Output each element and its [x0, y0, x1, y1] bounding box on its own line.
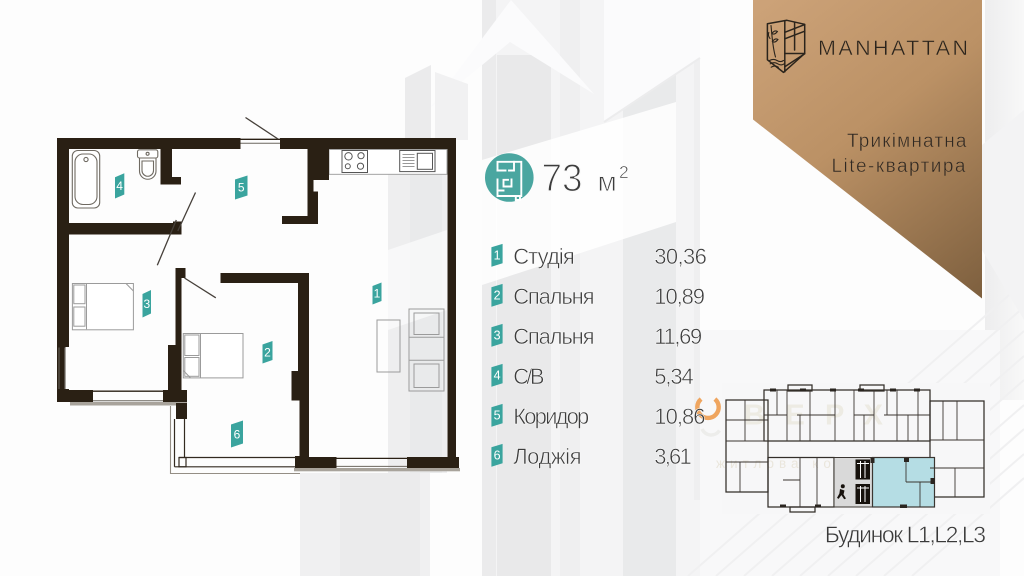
svg-text:4: 4: [116, 179, 123, 193]
svg-text:10,86: 10,86: [654, 404, 705, 429]
svg-text:4: 4: [494, 369, 501, 383]
svg-text:Коридор: Коридор: [513, 404, 589, 429]
svg-text:1: 1: [494, 249, 501, 263]
svg-text:Студія: Студія: [513, 244, 575, 269]
svg-text:2: 2: [264, 346, 271, 360]
svg-text:5: 5: [238, 181, 245, 195]
svg-text:MANHATTAN: MANHATTAN: [818, 36, 968, 60]
svg-text:2: 2: [494, 289, 501, 303]
svg-text:Трикімнатна: Трикімнатна: [847, 131, 967, 152]
svg-text:30,36: 30,36: [654, 244, 707, 269]
svg-text:Спальня: Спальня: [513, 324, 594, 349]
svg-text:5: 5: [494, 409, 501, 423]
svg-text:2: 2: [619, 162, 629, 182]
svg-text:6: 6: [494, 449, 501, 463]
svg-text:Спальня: Спальня: [513, 284, 594, 309]
svg-text:3,61: 3,61: [654, 444, 691, 469]
svg-text:Лоджія: Лоджія: [513, 444, 581, 469]
svg-text:3: 3: [143, 297, 150, 311]
svg-text:Lite-квартира: Lite-квартира: [832, 156, 966, 177]
svg-text:6: 6: [234, 428, 241, 442]
svg-text:Будинок L1,L2,L3: Будинок L1,L2,L3: [825, 521, 986, 547]
svg-text:м: м: [598, 166, 617, 197]
svg-text:С/В: С/В: [513, 364, 544, 389]
svg-text:1: 1: [374, 287, 381, 301]
svg-text:73: 73: [542, 157, 583, 200]
svg-text:11,69: 11,69: [654, 324, 702, 349]
svg-text:10,89: 10,89: [654, 284, 705, 309]
svg-text:5,34: 5,34: [654, 364, 693, 389]
svg-text:3: 3: [494, 329, 501, 343]
